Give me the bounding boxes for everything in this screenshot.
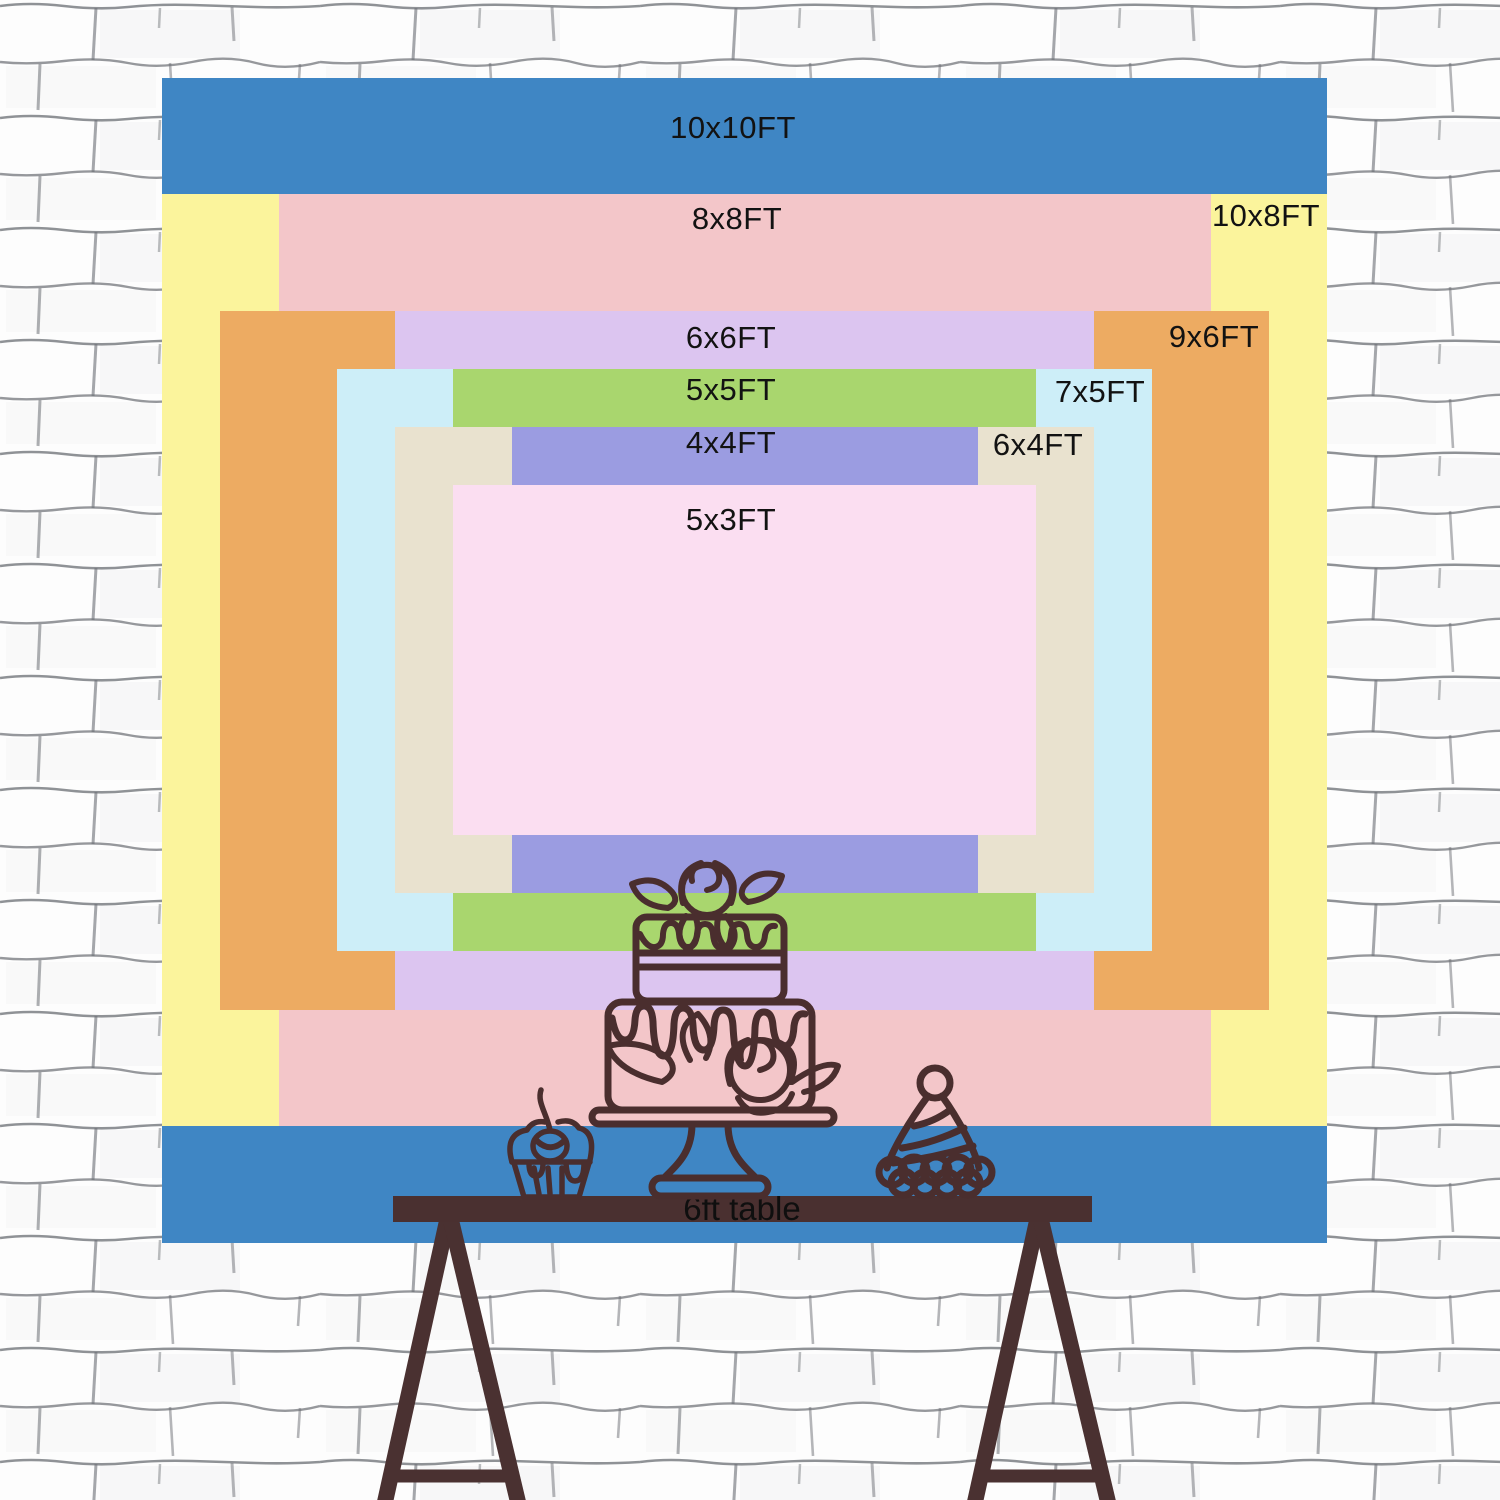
party-hat-illustration: [879, 1068, 992, 1196]
cherry-shine: [537, 1140, 565, 1147]
cupcake-drip: [566, 1163, 584, 1181]
table-leg: [1039, 1212, 1108, 1500]
cake-illustration: [592, 863, 838, 1196]
cake-stand-stem: [728, 1124, 756, 1178]
cupcake-cup-flutes: [534, 1168, 562, 1194]
flower-leaf: [608, 1044, 673, 1082]
rose-leaf: [717, 916, 734, 950]
table-and-decorations: 6ft table: [0, 0, 1500, 1500]
table-leg: [975, 1212, 1039, 1500]
hat-stripe: [902, 1128, 964, 1148]
hat-pompom: [920, 1068, 950, 1098]
cake-stand-base: [652, 1178, 768, 1196]
trestle-table: 6ft table: [385, 1190, 1108, 1500]
rose-leaf: [742, 874, 782, 902]
table-leg: [385, 1212, 449, 1500]
cake-stand-stem: [664, 1124, 692, 1178]
table-leg: [449, 1212, 518, 1500]
rose-leaf: [632, 880, 675, 908]
cake-top-drip-icing: [640, 923, 775, 948]
cupcake-illustration: [510, 1090, 592, 1197]
backdrop-size-chart: 10x10FT10x8FT8x8FT9x6FT6x6FT7x5FT5x5FT6x…: [0, 0, 1500, 1500]
